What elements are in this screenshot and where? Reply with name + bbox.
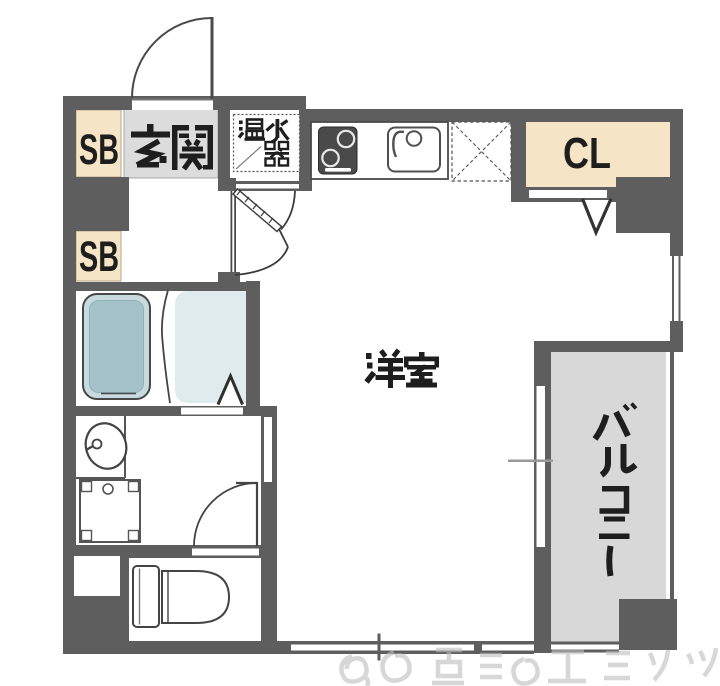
svg-text:SB: SB bbox=[79, 233, 119, 281]
svg-text:CL: CL bbox=[563, 129, 611, 178]
svg-text:SB: SB bbox=[79, 126, 119, 174]
